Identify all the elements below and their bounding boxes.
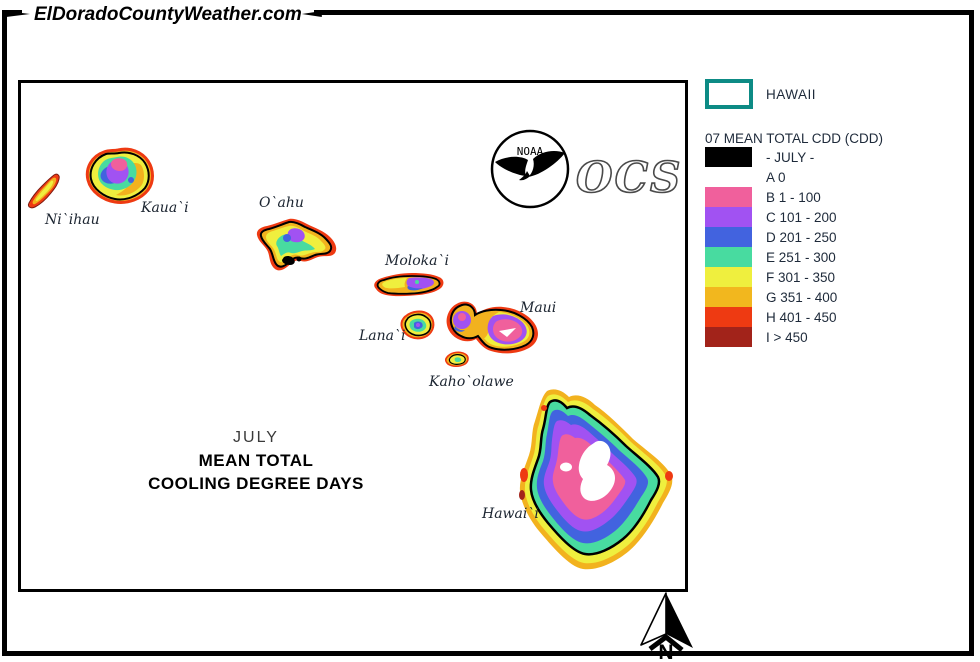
legend-title: 07 MEAN TOTAL CDD (CDD) (705, 131, 883, 146)
legend-region-row: HAWAII (705, 79, 816, 109)
site-logo-text: ElDoradoCountyWeather.com (34, 4, 302, 26)
island-label-maui: Maui (520, 300, 556, 316)
legend-row: I > 450 (705, 327, 837, 347)
island-lanai (401, 312, 433, 339)
island-kahoolawe (446, 352, 468, 366)
legend-label: I > 450 (766, 330, 808, 345)
hawaii-region-swatch (705, 79, 753, 109)
legend-label: A 0 (766, 170, 786, 185)
island-molokai (374, 273, 443, 296)
legend-row: G 351 - 400 (705, 287, 837, 307)
map-title-line2: MEAN TOTAL (111, 449, 401, 472)
site-logo[interactable]: ElDoradoCountyWeather.com (22, 0, 314, 30)
legend-row: C 101 - 200 (705, 207, 837, 227)
hawaii-region-label: HAWAII (766, 87, 816, 102)
island-kauai (87, 149, 152, 202)
island-label-kahoolawe: Kaho`olawe (429, 374, 514, 390)
legend-panel: HAWAII 07 MEAN TOTAL CDD (CDD) - JULY - … (705, 0, 975, 662)
legend-row: A 0 (705, 167, 837, 187)
noaa-logo: NOAA (489, 128, 571, 210)
legend-items: - JULY - A 0 B 1 - 100 C 101 - 200 (705, 147, 837, 347)
legend-swatch (705, 227, 752, 247)
legend-row: E 251 - 300 (705, 247, 837, 267)
legend-label: E 251 - 300 (766, 250, 836, 265)
legend-swatch (705, 307, 752, 327)
north-arrow: N (628, 590, 704, 660)
map-title-month: JULY (111, 427, 401, 449)
legend-swatch (705, 187, 752, 207)
island-label-molokai: Moloka`i (385, 253, 449, 269)
map-title: JULY MEAN TOTAL COOLING DEGREE DAYS (111, 427, 401, 495)
legend-row: B 1 - 100 (705, 187, 837, 207)
island-label-kauai: Kaua`i (141, 200, 189, 216)
legend-row: H 401 - 450 (705, 307, 837, 327)
ocs-logo: OCS (576, 153, 682, 202)
legend-row: - JULY - (705, 147, 837, 167)
island-label-oahu: O`ahu (259, 195, 304, 211)
legend-swatch (705, 247, 752, 267)
island-oahu (257, 219, 336, 271)
legend-row: F 301 - 350 (705, 267, 837, 287)
legend-swatch (705, 207, 752, 227)
legend-label: D 201 - 250 (766, 230, 837, 245)
legend-swatch (705, 147, 752, 167)
island-niihau (28, 174, 59, 208)
weather-map-page: ElDoradoCountyWeather.com (0, 0, 980, 662)
legend-swatch (705, 287, 752, 307)
legend-label: G 351 - 400 (766, 290, 837, 305)
legend-label: H 401 - 450 (766, 310, 837, 325)
island-label-hawaii: Hawai`i (482, 506, 539, 522)
map-title-line3: COOLING DEGREE DAYS (111, 472, 401, 495)
legend-label: C 101 - 200 (766, 210, 837, 225)
legend-label: B 1 - 100 (766, 190, 821, 205)
north-arrow-label: N (658, 641, 673, 660)
legend-label: F 301 - 350 (766, 270, 835, 285)
hawaii-map: Ni`ihau Kaua`i O`ahu Moloka`i Lana`i Mau… (18, 80, 688, 592)
legend-swatch (705, 167, 752, 187)
island-label-niihau: Ni`ihau (45, 212, 100, 228)
island-label-lanai: Lana`i (359, 328, 405, 344)
island-hawaii (519, 389, 673, 569)
legend-label: - JULY - (766, 150, 814, 165)
legend-swatch (705, 267, 752, 287)
legend-row: D 201 - 250 (705, 227, 837, 247)
legend-swatch (705, 327, 752, 347)
